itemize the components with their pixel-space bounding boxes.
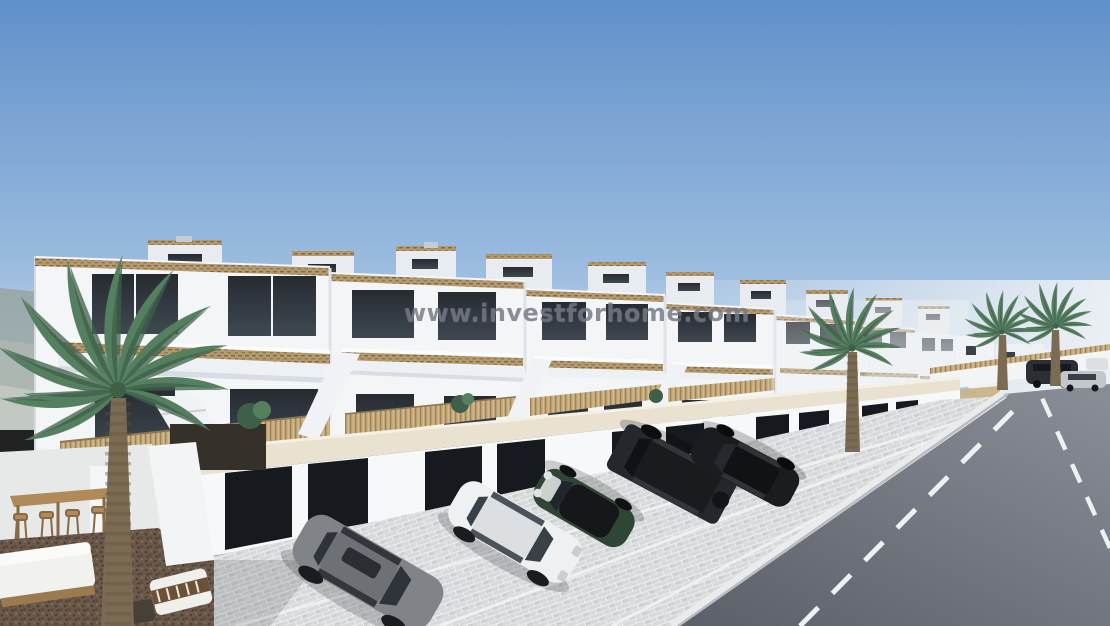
distant-parked-cars xyxy=(1026,358,1108,392)
scene-canvas xyxy=(0,0,1110,626)
architectural-render: www.investforhome.com xyxy=(0,0,1110,626)
